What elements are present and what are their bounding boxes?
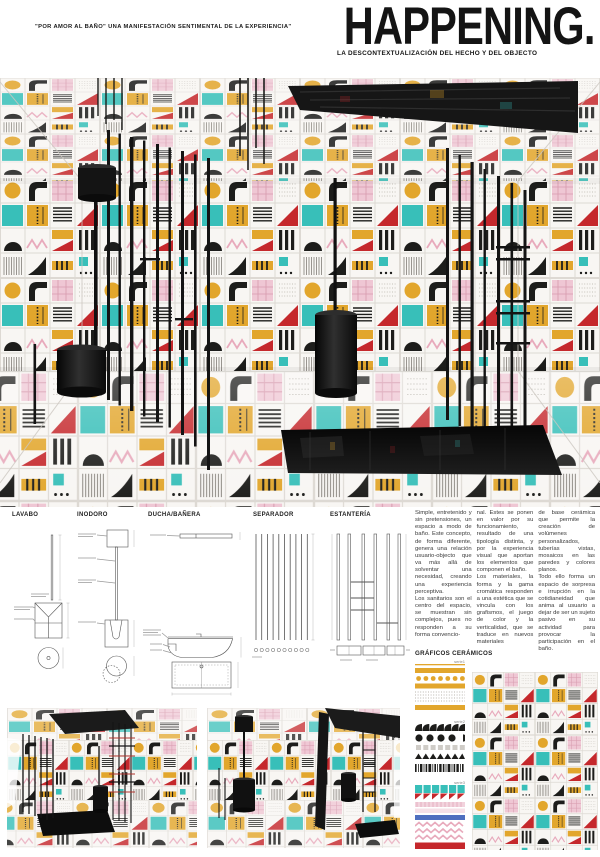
ceramic-series: serie1 serie2	[415, 659, 465, 849]
secondary-render-1	[7, 708, 197, 848]
estanteria-drawing	[330, 534, 410, 660]
body-text: Simple, entretenido y sin pretensiones, …	[415, 510, 595, 653]
serie3-strip	[415, 785, 465, 849]
drawing-label-lavabo: LAVABO	[12, 512, 38, 518]
poster-subtitle: LA DESCONTEXTUALIZACIÓN DEL HECHO Y DEL …	[337, 50, 537, 57]
inodoro-drawing	[78, 530, 134, 683]
main-room-render	[0, 78, 600, 507]
serie2-strip	[415, 724, 465, 774]
text-column-3: de base cerámica que permite la creación…	[538, 510, 595, 653]
drawing-label-inodoro: INODORO	[77, 512, 108, 518]
basin-cylinder	[93, 785, 108, 813]
lavabo-drawing	[14, 535, 70, 669]
small-pole	[34, 344, 37, 424]
poster-title: HAPPENING.	[344, 0, 595, 53]
serie1-strip	[415, 664, 465, 712]
tile-pattern-sample	[472, 672, 598, 850]
technical-drawings	[0, 520, 412, 702]
design-poster: "POR AMOR AL BAÑO" UNA MANIFESTACIÓN SEN…	[0, 0, 600, 857]
basin-cylinder-2	[341, 772, 356, 802]
text-column-2: nal. Estes se ponen en valor por su func…	[477, 510, 534, 653]
header-quote: "POR AMOR AL BAÑO" UNA MANIFESTACIÓN SEN…	[35, 24, 292, 30]
floor-pit	[37, 810, 115, 836]
drawing-label-estanteria: ESTANTERÍA	[330, 512, 371, 518]
drawing-label-separador: SEPARADOR	[253, 512, 294, 518]
separador-drawing	[252, 534, 315, 657]
text-column-1: Simple, entretenido y sin pretensiones, …	[415, 510, 472, 653]
graficos-heading: GRÁFICOS CERÁMICOS	[415, 650, 493, 657]
ducha-banera-drawing	[143, 532, 241, 696]
drawing-label-ducha-banera: DUCHA/BAÑERA	[148, 512, 201, 518]
sunken-bath-pit	[281, 425, 562, 475]
secondary-render-2	[207, 708, 400, 848]
